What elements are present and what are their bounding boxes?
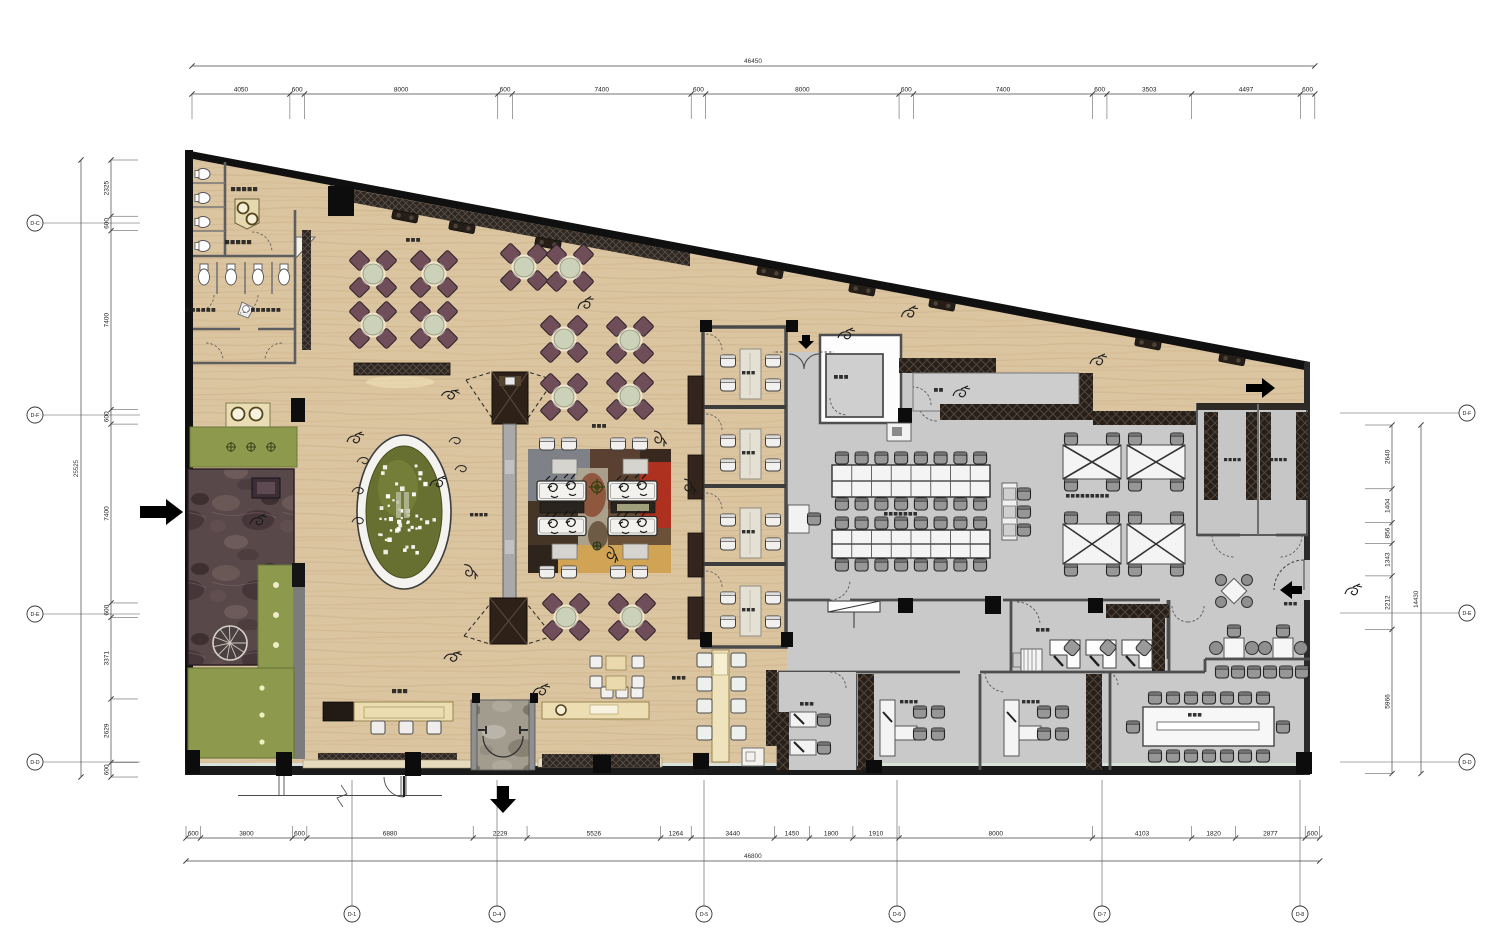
svg-text:D-C: D-C <box>30 221 39 227</box>
svg-text:D-D: D-D <box>30 760 39 766</box>
svg-text:1404: 1404 <box>1385 498 1392 513</box>
svg-text:600: 600 <box>292 87 303 94</box>
svg-text:1343: 1343 <box>1385 552 1392 567</box>
svg-text:600: 600 <box>104 764 111 775</box>
svg-text:600: 600 <box>1307 831 1318 838</box>
svg-text:2640: 2640 <box>1385 449 1392 464</box>
svg-text:3800: 3800 <box>239 831 254 838</box>
svg-text:3371: 3371 <box>104 651 111 666</box>
svg-text:600: 600 <box>1302 87 1313 94</box>
svg-text:1910: 1910 <box>869 831 884 838</box>
svg-text:D-1: D-1 <box>348 912 356 918</box>
svg-text:2629: 2629 <box>104 723 111 738</box>
svg-text:600: 600 <box>294 831 305 838</box>
svg-text:600: 600 <box>500 87 511 94</box>
svg-text:D-E: D-E <box>1463 611 1472 617</box>
svg-text:25525: 25525 <box>73 459 80 477</box>
svg-text:4497: 4497 <box>1239 87 1254 94</box>
svg-text:1264: 1264 <box>669 831 684 838</box>
svg-text:46800: 46800 <box>744 853 762 860</box>
svg-text:2325: 2325 <box>104 180 111 195</box>
svg-text:14430: 14430 <box>1413 590 1420 608</box>
svg-text:7400: 7400 <box>996 87 1011 94</box>
svg-text:7400: 7400 <box>104 313 111 328</box>
svg-text:D-8: D-8 <box>1296 912 1304 918</box>
svg-text:4050: 4050 <box>234 87 249 94</box>
svg-text:600: 600 <box>901 87 912 94</box>
svg-text:D-6: D-6 <box>893 912 901 918</box>
svg-text:1820: 1820 <box>1206 831 1221 838</box>
svg-text:5966: 5966 <box>1385 694 1392 709</box>
svg-text:2212: 2212 <box>1385 595 1392 610</box>
svg-text:600: 600 <box>188 831 199 838</box>
svg-text:600: 600 <box>1094 87 1105 94</box>
svg-text:D-7: D-7 <box>1098 912 1106 918</box>
svg-text:6880: 6880 <box>383 831 398 838</box>
svg-text:D-F: D-F <box>1463 411 1472 417</box>
svg-text:8000: 8000 <box>989 831 1004 838</box>
svg-text:7400: 7400 <box>594 87 609 94</box>
svg-text:600: 600 <box>104 411 111 422</box>
svg-text:3503: 3503 <box>1142 87 1157 94</box>
svg-text:1800: 1800 <box>824 831 839 838</box>
svg-text:D-D: D-D <box>1462 760 1471 766</box>
svg-text:8000: 8000 <box>795 87 810 94</box>
svg-text:D-5: D-5 <box>700 912 708 918</box>
svg-text:46450: 46450 <box>744 58 762 65</box>
svg-text:4103: 4103 <box>1135 831 1150 838</box>
svg-text:D-4: D-4 <box>493 912 501 918</box>
svg-text:1450: 1450 <box>785 831 800 838</box>
svg-text:D-E: D-E <box>31 612 40 618</box>
svg-text:3440: 3440 <box>726 831 741 838</box>
svg-text:7400: 7400 <box>104 506 111 521</box>
svg-text:2877: 2877 <box>1263 831 1278 838</box>
svg-text:5526: 5526 <box>587 831 602 838</box>
svg-text:600: 600 <box>693 87 704 94</box>
svg-text:2229: 2229 <box>493 831 508 838</box>
svg-text:856: 856 <box>1385 527 1392 538</box>
svg-text:8000: 8000 <box>394 87 409 94</box>
svg-text:D-F: D-F <box>31 413 40 419</box>
